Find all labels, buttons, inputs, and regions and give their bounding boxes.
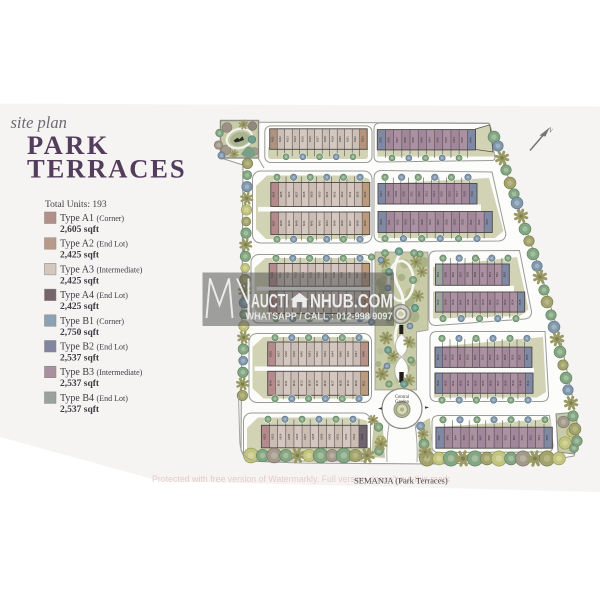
svg-text:M31: M31 xyxy=(336,433,340,439)
svg-text:B37: B37 xyxy=(496,380,500,386)
svg-text:B43: B43 xyxy=(503,272,507,278)
svg-text:B13: B13 xyxy=(529,435,533,441)
svg-text:B33: B33 xyxy=(485,219,489,225)
svg-text:M21: M21 xyxy=(345,136,349,142)
svg-text:Type B4 (End Lot): Type B4 (End Lot) xyxy=(60,393,128,404)
svg-text:B31: B31 xyxy=(469,219,473,225)
svg-text:B41: B41 xyxy=(526,380,530,386)
svg-text:B26: B26 xyxy=(510,354,514,360)
svg-text:B47: B47 xyxy=(379,191,383,197)
svg-text:B15: B15 xyxy=(440,191,444,197)
svg-text:M36: M36 xyxy=(269,351,273,357)
svg-text:B40: B40 xyxy=(419,137,423,143)
svg-text:M25: M25 xyxy=(279,191,283,197)
svg-text:M23: M23 xyxy=(360,136,364,142)
svg-text:B47: B47 xyxy=(459,299,463,305)
svg-text:B35: B35 xyxy=(481,380,485,386)
svg-text:B36: B36 xyxy=(387,137,391,143)
svg-text:B38: B38 xyxy=(466,272,470,278)
svg-text:M18: M18 xyxy=(323,136,327,142)
svg-text:M30: M30 xyxy=(328,433,332,439)
svg-text:2,425 sqft: 2,425 sqft xyxy=(60,302,100,312)
svg-text:B18: B18 xyxy=(463,191,467,197)
svg-text:M29: M29 xyxy=(319,433,323,439)
svg-text:B20: B20 xyxy=(466,354,470,360)
svg-text:M22: M22 xyxy=(263,433,267,439)
svg-text:M47: M47 xyxy=(348,220,352,226)
svg-text:M39: M39 xyxy=(287,220,291,226)
svg-text:M32: M32 xyxy=(333,191,337,197)
svg-text:2,750 sqft: 2,750 sqft xyxy=(60,328,100,338)
svg-text:M24: M24 xyxy=(279,433,283,439)
svg-text:B30: B30 xyxy=(443,380,447,386)
svg-text:B19: B19 xyxy=(458,354,462,360)
svg-text:B12: B12 xyxy=(417,191,421,197)
svg-text:B34: B34 xyxy=(436,272,440,278)
svg-text:SEMANJA (Park Terraces): SEMANJA (Park Terraces) xyxy=(354,476,448,486)
svg-text:B48: B48 xyxy=(386,191,390,197)
svg-text:M14: M14 xyxy=(307,380,311,386)
svg-text:M34: M34 xyxy=(348,191,352,197)
svg-text:Type B3 (Intermediate): Type B3 (Intermediate) xyxy=(60,367,143,378)
svg-text:M11: M11 xyxy=(284,380,288,386)
svg-text:2,605 sqft: 2,605 sqft xyxy=(60,225,100,235)
svg-text:B46: B46 xyxy=(470,435,474,441)
svg-text:B46: B46 xyxy=(451,299,455,305)
svg-text:TERRACES: TERRACES xyxy=(27,154,187,184)
svg-text:M15: M15 xyxy=(300,136,304,142)
svg-text:2,425 sqft: 2,425 sqft xyxy=(60,276,100,286)
svg-text:B23: B23 xyxy=(488,354,492,360)
svg-text:WHATSAPP / CALL : 012-998 9097: WHATSAPP / CALL : 012-998 9097 xyxy=(246,311,393,323)
svg-text:B14: B14 xyxy=(537,435,541,441)
svg-text:M27: M27 xyxy=(295,191,299,197)
svg-text:B15: B15 xyxy=(518,299,522,305)
svg-text:M49: M49 xyxy=(363,220,367,226)
svg-text:M42: M42 xyxy=(315,351,319,357)
svg-text:B38: B38 xyxy=(403,137,407,143)
svg-text:B11: B11 xyxy=(512,435,516,440)
svg-text:B28: B28 xyxy=(444,219,448,225)
svg-text:B45: B45 xyxy=(444,299,448,305)
svg-text:2,425 sqft: 2,425 sqft xyxy=(60,251,100,261)
svg-text:Type A3 (Intermediate): Type A3 (Intermediate) xyxy=(60,264,143,275)
svg-text:B40: B40 xyxy=(519,380,523,386)
svg-text:M28: M28 xyxy=(302,191,306,197)
svg-text:M11: M11 xyxy=(270,136,274,142)
svg-text:M44: M44 xyxy=(331,351,335,357)
svg-text:M25: M25 xyxy=(287,433,291,439)
svg-text:B11: B11 xyxy=(409,191,413,196)
svg-text:B10: B10 xyxy=(481,299,485,305)
svg-text:M43: M43 xyxy=(317,220,321,226)
svg-text:M43: M43 xyxy=(323,351,327,357)
svg-text:AUCTI: AUCTI xyxy=(251,292,289,313)
svg-text:M37: M37 xyxy=(276,351,280,357)
svg-text:M35: M35 xyxy=(355,191,359,197)
svg-text:B24: B24 xyxy=(412,219,416,225)
svg-text:B14: B14 xyxy=(432,191,436,197)
svg-text:B41: B41 xyxy=(488,272,492,278)
svg-text:B17: B17 xyxy=(455,191,459,197)
svg-text:M29: M29 xyxy=(310,191,314,197)
svg-text:B42: B42 xyxy=(495,272,499,278)
svg-text:B28: B28 xyxy=(525,354,529,360)
svg-text:M12: M12 xyxy=(278,136,282,142)
svg-text:B39: B39 xyxy=(411,137,415,143)
svg-text:B48: B48 xyxy=(487,435,491,441)
svg-text:B32: B32 xyxy=(477,219,481,225)
svg-text:M16: M16 xyxy=(323,380,327,386)
svg-text:B49: B49 xyxy=(473,299,477,305)
svg-text:B17: B17 xyxy=(443,354,447,360)
svg-text:M38: M38 xyxy=(284,351,288,357)
svg-text:M12: M12 xyxy=(292,380,296,386)
svg-text:M19: M19 xyxy=(330,136,334,142)
svg-text:M14: M14 xyxy=(293,136,297,142)
svg-text:M39: M39 xyxy=(292,351,296,357)
svg-text:M20: M20 xyxy=(354,380,358,386)
svg-text:B27: B27 xyxy=(518,354,522,360)
svg-text:B42: B42 xyxy=(436,137,440,143)
svg-text:B37: B37 xyxy=(458,272,462,278)
svg-text:B39: B39 xyxy=(473,272,477,278)
svg-text:M26: M26 xyxy=(295,433,299,439)
svg-text:M46: M46 xyxy=(340,220,344,226)
svg-text:B46: B46 xyxy=(468,137,472,143)
svg-text:B20: B20 xyxy=(379,219,383,225)
svg-text:2,537 sqft: 2,537 sqft xyxy=(60,405,100,415)
svg-text:B22: B22 xyxy=(395,219,399,225)
svg-text:M33: M33 xyxy=(352,433,356,439)
svg-text:Type B1 (Corner): Type B1 (Corner) xyxy=(60,316,124,327)
svg-text:M48: M48 xyxy=(362,351,366,357)
svg-text:B36: B36 xyxy=(489,380,493,386)
svg-text:B16: B16 xyxy=(447,191,451,197)
svg-text:M18: M18 xyxy=(338,380,342,386)
svg-text:B38: B38 xyxy=(504,380,508,386)
svg-text:Type B2 (End Lot): Type B2 (End Lot) xyxy=(60,342,128,353)
svg-text:M41: M41 xyxy=(307,351,311,357)
svg-text:M40: M40 xyxy=(295,220,299,226)
svg-text:M22: M22 xyxy=(353,136,357,142)
svg-text:M34: M34 xyxy=(360,433,364,439)
svg-text:M33: M33 xyxy=(340,191,344,197)
svg-text:B41: B41 xyxy=(428,137,432,143)
svg-text:M19: M19 xyxy=(346,380,350,386)
svg-text:B18: B18 xyxy=(451,354,455,360)
svg-text:M42: M42 xyxy=(310,220,314,226)
svg-text:B12: B12 xyxy=(520,435,524,441)
svg-text:B39: B39 xyxy=(511,380,515,386)
svg-text:NHUB.COM: NHUB.COM xyxy=(310,292,393,313)
svg-text:B21: B21 xyxy=(473,354,477,360)
svg-text:M16: M16 xyxy=(308,136,312,142)
svg-text:B35: B35 xyxy=(444,272,448,278)
svg-text:M45: M45 xyxy=(333,220,337,226)
svg-text:M47: M47 xyxy=(354,351,358,357)
svg-text:M20: M20 xyxy=(338,136,342,142)
svg-text:B13: B13 xyxy=(503,299,507,305)
svg-text:B36: B36 xyxy=(451,272,455,278)
svg-text:B33: B33 xyxy=(466,380,470,386)
svg-text:2,537 sqft: 2,537 sqft xyxy=(60,379,100,389)
svg-text:B48: B48 xyxy=(466,299,470,305)
svg-text:B13: B13 xyxy=(425,191,429,197)
svg-text:M41: M41 xyxy=(302,220,306,226)
svg-text:B45: B45 xyxy=(462,435,466,441)
svg-text:M17: M17 xyxy=(315,136,319,142)
svg-text:B21: B21 xyxy=(387,219,391,225)
svg-text:Type A1 (Corner): Type A1 (Corner) xyxy=(60,213,124,224)
svg-text:B24: B24 xyxy=(495,354,499,360)
svg-text:B49: B49 xyxy=(394,191,398,197)
svg-text:Garden: Garden xyxy=(395,400,410,405)
svg-text:B34: B34 xyxy=(474,380,478,386)
svg-text:M13: M13 xyxy=(300,380,304,386)
svg-text:Total Units: 193: Total Units: 193 xyxy=(45,200,107,210)
svg-text:M37: M37 xyxy=(272,220,276,226)
svg-text:B10: B10 xyxy=(504,435,508,441)
svg-text:B19: B19 xyxy=(470,191,474,197)
svg-text:B25: B25 xyxy=(503,354,507,360)
svg-text:Type A2 (End Lot): Type A2 (End Lot) xyxy=(60,239,128,250)
svg-text:M32: M32 xyxy=(344,433,348,439)
svg-text:M15: M15 xyxy=(315,380,319,386)
svg-text:M21: M21 xyxy=(362,380,366,386)
svg-text:B45: B45 xyxy=(460,137,464,143)
svg-text:2,537 sqft: 2,537 sqft xyxy=(60,354,100,364)
svg-text:M28: M28 xyxy=(311,433,315,439)
svg-text:B49: B49 xyxy=(495,435,499,441)
svg-text:M26: M26 xyxy=(287,191,291,197)
svg-text:M49: M49 xyxy=(269,380,273,386)
svg-text:M36: M36 xyxy=(363,191,367,197)
svg-text:B47: B47 xyxy=(479,435,483,441)
svg-text:B43: B43 xyxy=(444,137,448,143)
svg-text:M31: M31 xyxy=(325,191,329,197)
svg-text:M27: M27 xyxy=(303,433,307,439)
svg-text:B30: B30 xyxy=(461,219,465,225)
svg-text:B44: B44 xyxy=(454,435,458,441)
svg-text:B11: B11 xyxy=(488,299,492,304)
svg-text:M24: M24 xyxy=(272,191,276,197)
svg-text:B43: B43 xyxy=(445,435,449,441)
svg-text:M10: M10 xyxy=(276,380,280,386)
svg-text:B27: B27 xyxy=(436,219,440,225)
svg-text:B10: B10 xyxy=(402,191,406,197)
svg-text:M44: M44 xyxy=(325,220,329,226)
svg-text:M13: M13 xyxy=(285,136,289,142)
svg-text:B35: B35 xyxy=(378,137,382,143)
svg-text:B14: B14 xyxy=(511,299,515,305)
svg-text:B22: B22 xyxy=(481,354,485,360)
svg-text:M48: M48 xyxy=(355,220,359,226)
svg-text:M40: M40 xyxy=(300,351,304,357)
svg-text:M30: M30 xyxy=(317,191,321,197)
svg-text:M46: M46 xyxy=(346,351,350,357)
svg-text:M17: M17 xyxy=(331,380,335,386)
svg-text:B23: B23 xyxy=(404,219,408,225)
svg-text:B29: B29 xyxy=(453,219,457,225)
svg-text:B42: B42 xyxy=(437,435,441,441)
svg-text:B12: B12 xyxy=(496,299,500,305)
svg-text:B15: B15 xyxy=(545,435,549,441)
svg-text:B37: B37 xyxy=(395,137,399,143)
svg-text:B25: B25 xyxy=(420,219,424,225)
svg-text:M45: M45 xyxy=(338,351,342,357)
svg-text:B26: B26 xyxy=(428,219,432,225)
svg-text:Type A4 (End Lot): Type A4 (End Lot) xyxy=(60,290,128,301)
svg-text:B16: B16 xyxy=(436,354,440,360)
svg-text:B40: B40 xyxy=(481,272,485,278)
svg-text:B44: B44 xyxy=(452,137,456,143)
svg-text:M38: M38 xyxy=(279,220,283,226)
svg-text:B44: B44 xyxy=(436,299,440,305)
svg-text:B32: B32 xyxy=(459,380,463,386)
svg-text:B31: B31 xyxy=(451,380,455,386)
svg-text:B29: B29 xyxy=(436,380,440,386)
svg-text:M23: M23 xyxy=(271,433,275,439)
